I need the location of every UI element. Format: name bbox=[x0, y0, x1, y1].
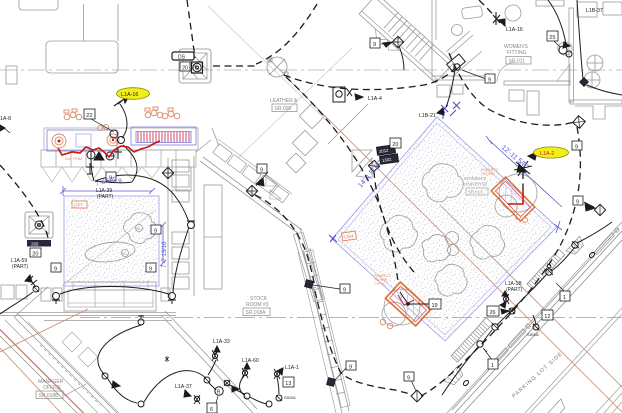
svg-text:SR.018A: SR.018A bbox=[246, 310, 267, 316]
svg-text:DS: DS bbox=[178, 55, 186, 61]
svg-text:(PART): (PART) bbox=[506, 287, 523, 293]
svg-text:ROOM #3: ROOM #3 bbox=[246, 302, 269, 308]
svg-text:SR.008: SR.008 bbox=[275, 106, 292, 112]
svg-text:9: 9 bbox=[260, 167, 263, 173]
svg-text:R: R bbox=[217, 390, 221, 396]
svg-text:SIGN1: SIGN1 bbox=[284, 395, 297, 400]
svg-text:WOMEN'S: WOMEN'S bbox=[464, 176, 486, 181]
svg-text:80: 80 bbox=[122, 252, 126, 256]
svg-text:9: 9 bbox=[407, 375, 410, 381]
svg-text:2x4 TRIM: 2x4 TRIM bbox=[65, 156, 82, 161]
svg-text:L1B-21: L1B-21 bbox=[419, 113, 436, 119]
svg-text:OPT: OPT bbox=[74, 203, 84, 208]
svg-text:L1A-60: L1A-60 bbox=[242, 358, 259, 364]
svg-text:9: 9 bbox=[54, 266, 57, 272]
svg-text:9: 9 bbox=[488, 77, 491, 83]
svg-text:L1B-37: L1B-37 bbox=[586, 8, 603, 14]
svg-text:9: 9 bbox=[575, 144, 578, 150]
svg-text:19: 19 bbox=[432, 303, 438, 309]
svg-text:1: 1 bbox=[563, 295, 566, 301]
svg-text:TYP 4X: TYP 4X bbox=[374, 282, 386, 286]
svg-text:L1A-1: L1A-1 bbox=[285, 365, 299, 371]
svg-text:SIGN1: SIGN1 bbox=[527, 332, 540, 337]
svg-text:SR.012: SR.012 bbox=[468, 190, 483, 195]
svg-text:UNIVERSE: UNIVERSE bbox=[464, 182, 488, 187]
svg-text:20: 20 bbox=[392, 142, 398, 148]
svg-text:9: 9 bbox=[373, 42, 376, 48]
svg-text:LEATHER &: LEATHER & bbox=[270, 98, 298, 104]
svg-text:25: 25 bbox=[549, 35, 555, 41]
svg-text:L1A-2: L1A-2 bbox=[540, 151, 554, 157]
svg-text:20: 20 bbox=[32, 251, 38, 257]
svg-text:13: 13 bbox=[285, 381, 291, 387]
svg-text:9: 9 bbox=[343, 287, 346, 293]
svg-text:265: 265 bbox=[31, 242, 39, 247]
svg-text:(PART): (PART) bbox=[12, 264, 29, 270]
svg-text:1A-8: 1A-8 bbox=[0, 116, 11, 122]
svg-text:80: 80 bbox=[136, 227, 140, 231]
svg-text:SR.011: SR.011 bbox=[509, 59, 526, 65]
svg-text:1: 1 bbox=[491, 363, 494, 369]
svg-text:12: 12 bbox=[544, 314, 550, 320]
svg-text:L1A-33: L1A-33 bbox=[213, 339, 230, 345]
svg-text:9: 9 bbox=[576, 199, 579, 205]
svg-text:9: 9 bbox=[149, 266, 152, 272]
svg-text:L1A-16: L1A-16 bbox=[121, 92, 138, 98]
svg-text:L1A-4: L1A-4 bbox=[368, 96, 382, 102]
svg-text:OFFICE: OFFICE bbox=[43, 385, 62, 391]
svg-text:9: 9 bbox=[154, 228, 157, 234]
svg-text:L1A-37: L1A-37 bbox=[175, 384, 192, 390]
svg-text:6: 6 bbox=[210, 407, 213, 413]
svg-text:FITTING: FITTING bbox=[507, 50, 527, 56]
svg-text:SR.018B: SR.018B bbox=[39, 393, 60, 399]
svg-text:L1A-16: L1A-16 bbox=[506, 27, 523, 33]
svg-text:26: 26 bbox=[490, 310, 496, 316]
svg-text:9: 9 bbox=[349, 364, 352, 370]
svg-text:7'-7 13/16: 7'-7 13/16 bbox=[162, 241, 168, 268]
svg-text:20: 20 bbox=[182, 65, 188, 71]
svg-text:(PART): (PART) bbox=[97, 194, 114, 200]
svg-text:22: 22 bbox=[86, 113, 92, 119]
